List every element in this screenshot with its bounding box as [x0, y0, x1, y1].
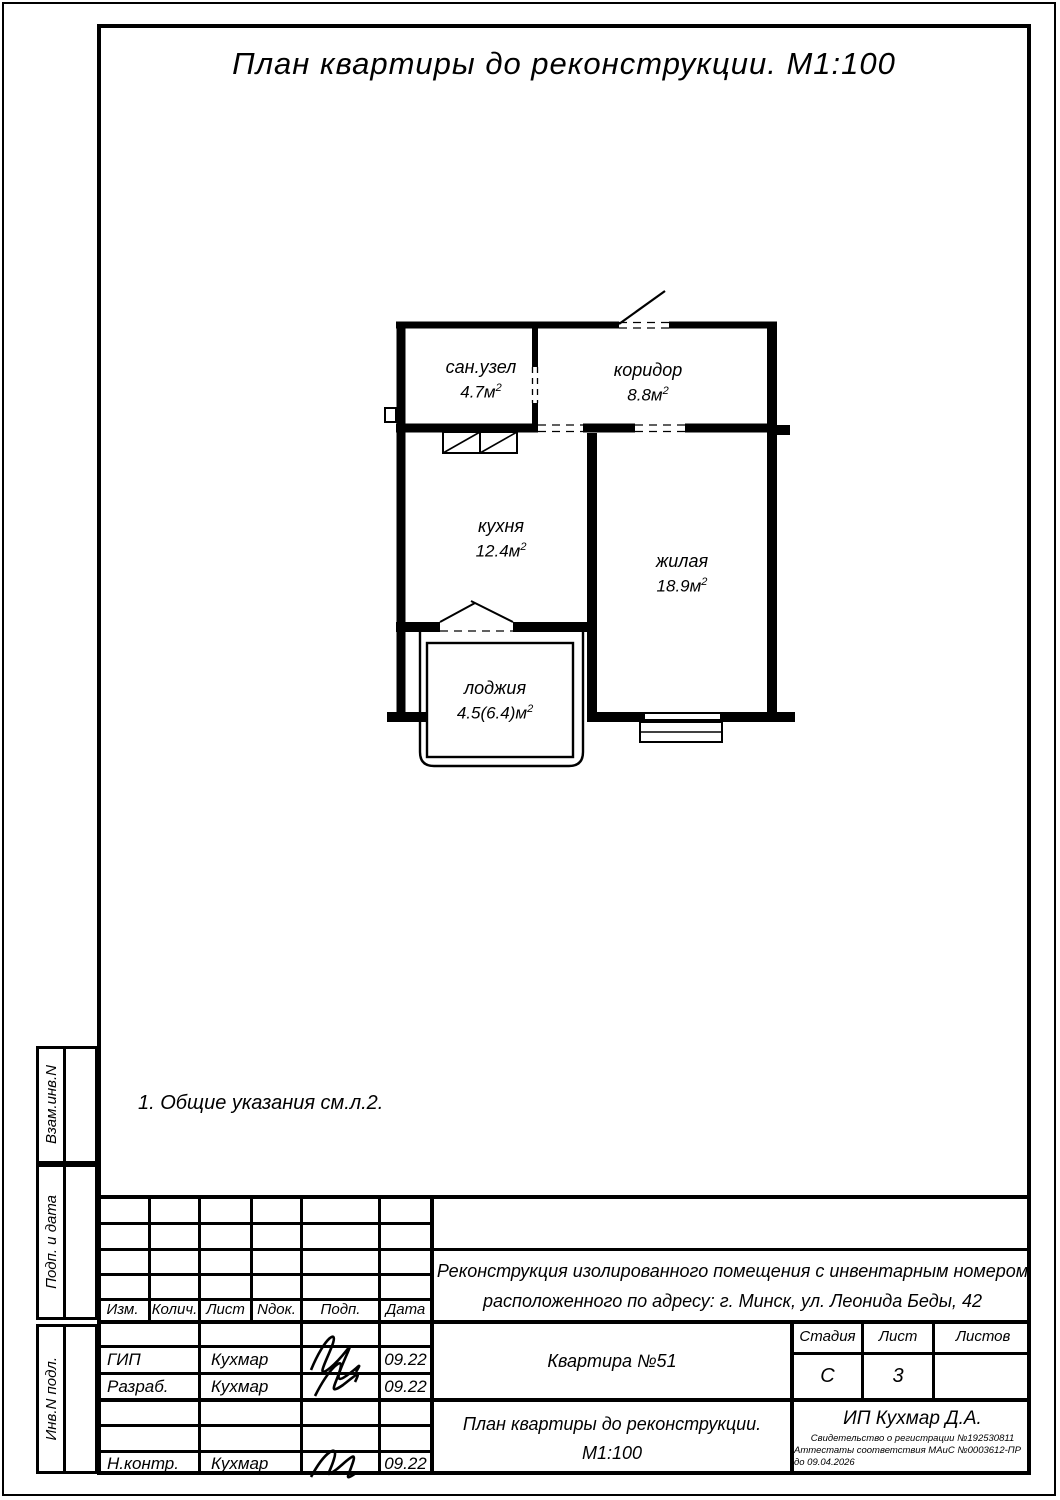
- window-glazing: [645, 713, 720, 720]
- tb-role-nkontr: Н.контр.: [97, 1453, 198, 1475]
- room-area-value: 4.7м: [460, 383, 495, 402]
- room-area: 12.4м2: [476, 537, 527, 562]
- tb-object: Квартира №51: [434, 1324, 790, 1398]
- room-name: коридор: [614, 360, 683, 381]
- tb-header-list: Лист: [201, 1298, 250, 1320]
- tb-date-nkontr: 09.22: [381, 1453, 430, 1475]
- sq-superscript: 2: [496, 382, 502, 394]
- tb-role-razrab: Разраб.: [97, 1375, 198, 1398]
- drawing-sheet: { "drawing": { "title": "План квартиры д…: [0, 0, 1060, 1500]
- stamp-label-cell: Инв.N подл.: [39, 1327, 66, 1471]
- room-area: 4.7м2: [446, 378, 517, 403]
- tb-cert-line2: Аттестаты соответствия МАиС №0003612-ПР …: [794, 1445, 1031, 1469]
- signature-nkontr: [303, 1439, 379, 1481]
- living-door-opening: [635, 425, 685, 432]
- tb-doc-title: План квартиры до реконструкции. М1:100: [434, 1402, 790, 1475]
- room-label-lodzhiya: лоджия 4.5(6.4)м2: [457, 678, 533, 724]
- balcony-door-leaves: [440, 601, 513, 622]
- tb-project-description: Реконструкция изолированного помещения с…: [434, 1251, 1031, 1320]
- pilaster-left: [385, 408, 396, 422]
- tb-project-line1: Реконструкция изолированного помещения с…: [437, 1256, 1028, 1286]
- grid-line: [97, 1195, 1031, 1199]
- tb-project-line2: расположенного по адресу: г. Минск, ул. …: [483, 1286, 982, 1316]
- room-area: 8.8м2: [614, 381, 683, 406]
- signature-gip-razrab: [301, 1322, 377, 1400]
- room-label-kuhnya: кухня 12.4м2: [476, 516, 527, 562]
- stamp-podp-data: Подп. и дата: [36, 1164, 98, 1320]
- tb-stage-value: С: [794, 1355, 861, 1398]
- pilaster-right: [777, 425, 790, 435]
- sq-superscript: 2: [527, 703, 533, 715]
- entrance-door-leaf: [619, 291, 665, 324]
- room-area: 18.9м2: [656, 572, 708, 597]
- stamp-label-cell: Подп. и дата: [39, 1167, 66, 1317]
- tb-header-podp: Подп.: [303, 1298, 378, 1320]
- tb-sheet-value: 3: [864, 1355, 932, 1398]
- tb-sheets-label: Листов: [935, 1320, 1031, 1352]
- room-area-value: 4.5(6.4)м: [457, 704, 527, 723]
- tb-doc-title-line2: М1:100: [582, 1439, 642, 1468]
- grid-line: [198, 1195, 201, 1475]
- tb-sheet-label: Лист: [864, 1320, 932, 1352]
- tb-date-razrab: 09.22: [381, 1375, 430, 1398]
- stamp-label: Подп. и дата: [43, 1195, 60, 1289]
- stamp-blank-cell: [66, 1167, 95, 1317]
- tb-name-nkontr: Кухмар: [201, 1453, 300, 1475]
- tb-sheets-value: [935, 1355, 1031, 1398]
- stamp-blank-cell: [66, 1327, 95, 1471]
- room-area-value: 8.8м: [627, 386, 662, 405]
- room-label-sanuzel: сан.узел 4.7м2: [446, 357, 517, 403]
- floor-plan: сан.узел 4.7м2 коридор 8.8м2 кухня 12.4м…: [383, 288, 803, 773]
- tb-name-razrab: Кухмар: [201, 1375, 300, 1398]
- tb-company: ИП Кухмар Д.А.: [843, 1408, 982, 1430]
- tb-name-gip: Кухмар: [201, 1348, 300, 1372]
- room-name: жилая: [656, 551, 708, 572]
- tb-header-izm: Изм.: [97, 1298, 148, 1320]
- stamp-inv-podl: Инв.N подл.: [36, 1324, 98, 1474]
- sq-superscript: 2: [663, 385, 669, 397]
- stamp-vzam-inv: Взам.инв.N: [36, 1046, 98, 1164]
- entrance-opening: [619, 323, 669, 329]
- tb-header-data: Дата: [381, 1298, 430, 1320]
- grid-line: [378, 1195, 381, 1475]
- sq-superscript: 2: [520, 541, 526, 553]
- sanuzel-door-opening: [533, 367, 538, 403]
- room-name: кухня: [476, 516, 527, 537]
- title-block: Изм. Колич. Лист Nдок. Подп. Дата ГИП Ку…: [97, 1195, 1031, 1475]
- stamp-label-cell: Взам.инв.N: [39, 1049, 66, 1161]
- room-name: сан.узел: [446, 357, 517, 378]
- stamp-blank-cell: [66, 1049, 95, 1161]
- tb-date-gip: 09.22: [381, 1348, 430, 1372]
- kitchen-door-opening: [538, 425, 583, 432]
- sheet-title: План квартиры до реконструкции. М1:100: [97, 46, 1031, 82]
- room-area-value: 18.9м: [657, 577, 702, 596]
- general-note: 1. Общие указания см.л.2.: [138, 1092, 383, 1115]
- room-label-koridor: коридор 8.8м2: [614, 360, 683, 406]
- room-name: лоджия: [457, 678, 533, 699]
- ledge-bottom-left: [387, 712, 428, 722]
- tb-header-kolich: Колич.: [151, 1298, 198, 1320]
- tb-doc-title-line1: План квартиры до реконструкции.: [463, 1410, 761, 1439]
- tb-cert-line1: Свидетельство о регистрации №192530811: [811, 1433, 1014, 1445]
- stamp-label: Инв.N подл.: [43, 1357, 60, 1441]
- tb-stage-label: Стадия: [794, 1320, 861, 1352]
- room-area: 4.5(6.4)м2: [457, 699, 533, 724]
- sq-superscript: 2: [701, 576, 707, 588]
- tb-header-ndok: Nдок.: [253, 1298, 300, 1320]
- room-area-value: 12.4м: [476, 542, 521, 561]
- room-label-zhilaya: жилая 18.9м2: [656, 551, 708, 597]
- tb-company-block: ИП Кухмар Д.А. Свидетельство о регистрац…: [794, 1402, 1031, 1475]
- stamp-label: Взам.инв.N: [43, 1065, 60, 1144]
- tb-role-gip: ГИП: [97, 1348, 198, 1372]
